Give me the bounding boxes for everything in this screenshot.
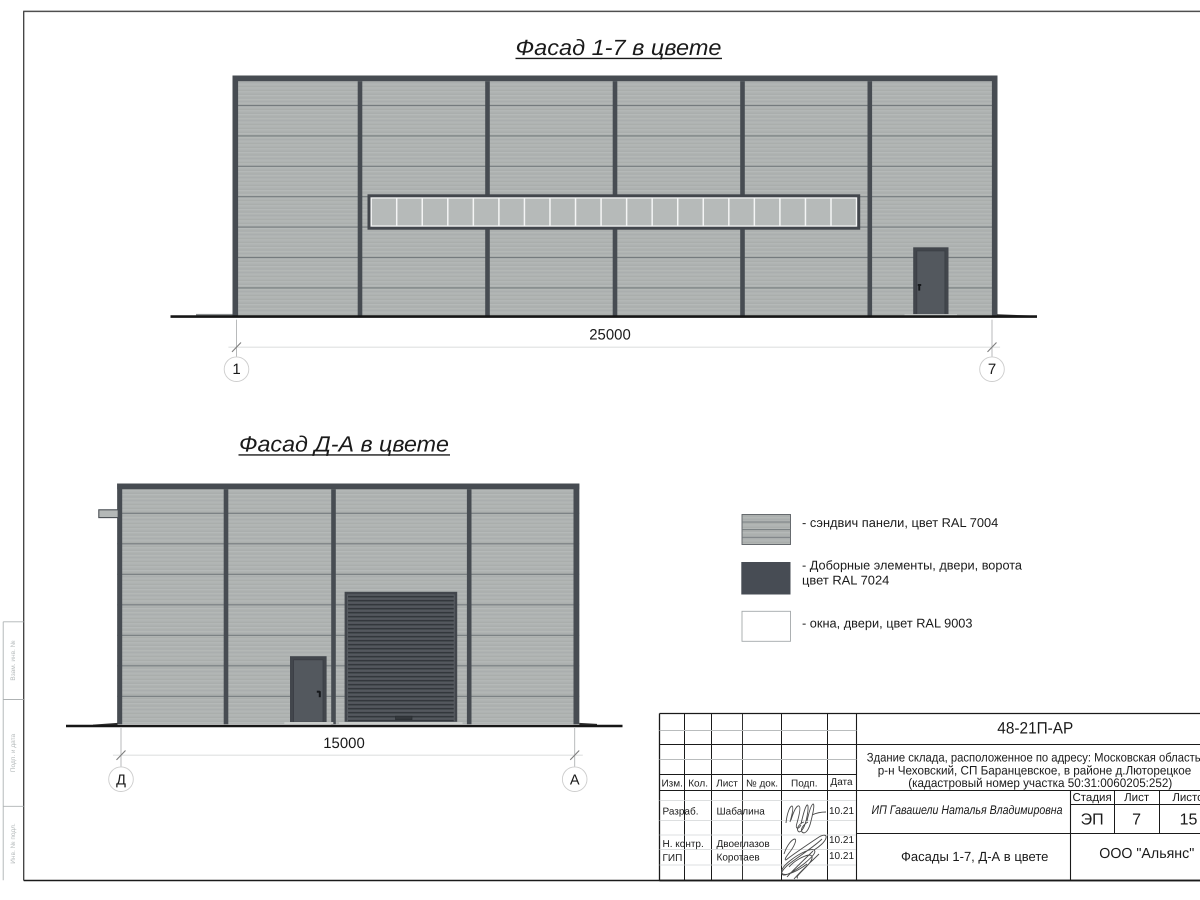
svg-text:Лист: Лист	[716, 778, 738, 789]
svg-text:7: 7	[1132, 811, 1141, 828]
svg-text:Фасад 1-7 в цвете: Фасад 1-7 в цвете	[516, 35, 722, 60]
svg-text:Коротаев: Коротаев	[717, 853, 760, 864]
svg-text:Подп. и дата: Подп. и дата	[10, 733, 17, 772]
svg-text:Н. контр.: Н. контр.	[663, 839, 704, 850]
svg-text:Лист: Лист	[1124, 792, 1150, 804]
svg-text:- Доборные элементы, двери, во: - Доборные элементы, двери, ворота	[802, 559, 1023, 573]
svg-text:ООО "Альянс": ООО "Альянс"	[1099, 846, 1194, 862]
svg-text:Здание склада, расположенное п: Здание склада, расположенное по адресу: …	[867, 750, 1200, 764]
svg-text:Фасады 1-7, Д-А в цвете: Фасады 1-7, Д-А в цвете	[901, 849, 1048, 864]
svg-text:- сэндвич панели, цвет RAL 700: - сэндвич панели, цвет RAL 7004	[802, 516, 998, 530]
svg-text:Листов: Листов	[1172, 792, 1200, 804]
svg-text:7: 7	[988, 361, 996, 378]
svg-text:Инв. № подл.: Инв. № подл.	[10, 823, 17, 864]
svg-text:ЭП: ЭП	[1081, 811, 1104, 828]
svg-text:А: А	[570, 772, 580, 788]
svg-text:1: 1	[232, 361, 240, 378]
svg-text:Дата: Дата	[830, 777, 853, 788]
svg-text:Фасад Д-А в цвете: Фасад Д-А в цвете	[239, 431, 449, 456]
svg-text:Шабалина: Шабалина	[717, 806, 766, 817]
svg-text:Подп.: Подп.	[791, 778, 818, 789]
svg-text:10.21: 10.21	[829, 851, 854, 862]
svg-text:25000: 25000	[589, 327, 631, 344]
svg-text:15: 15	[1180, 811, 1198, 828]
svg-text:10.21: 10.21	[829, 835, 854, 846]
svg-text:Стадия: Стадия	[1072, 792, 1111, 804]
svg-text:Кол.: Кол.	[688, 778, 708, 789]
svg-text:15000: 15000	[323, 735, 365, 752]
svg-text:цвет RAL 7024: цвет RAL 7024	[802, 574, 889, 588]
svg-text:Взам. инв. №: Взам. инв. №	[10, 640, 17, 680]
svg-text:- окна, двери, цвет RAL 9003: - окна, двери, цвет RAL 9003	[802, 617, 973, 631]
svg-text:Разраб.: Разраб.	[663, 806, 699, 817]
svg-text:10.21: 10.21	[829, 806, 854, 817]
svg-text:Д: Д	[116, 772, 126, 788]
svg-text:(кадастровый номер участка 50:: (кадастровый номер участка 50:31:0060205…	[908, 776, 1172, 790]
svg-text:Изм.: Изм.	[661, 778, 682, 789]
svg-text:48-21П-АР: 48-21П-АР	[997, 720, 1073, 738]
svg-text:Двоеглазов: Двоеглазов	[717, 839, 770, 850]
svg-text:ГИП: ГИП	[663, 853, 683, 864]
svg-text:ИП Гавашели Наталья Владимиров: ИП Гавашели Наталья Владимировна	[872, 803, 1063, 817]
svg-text:№ док.: № док.	[746, 778, 778, 789]
